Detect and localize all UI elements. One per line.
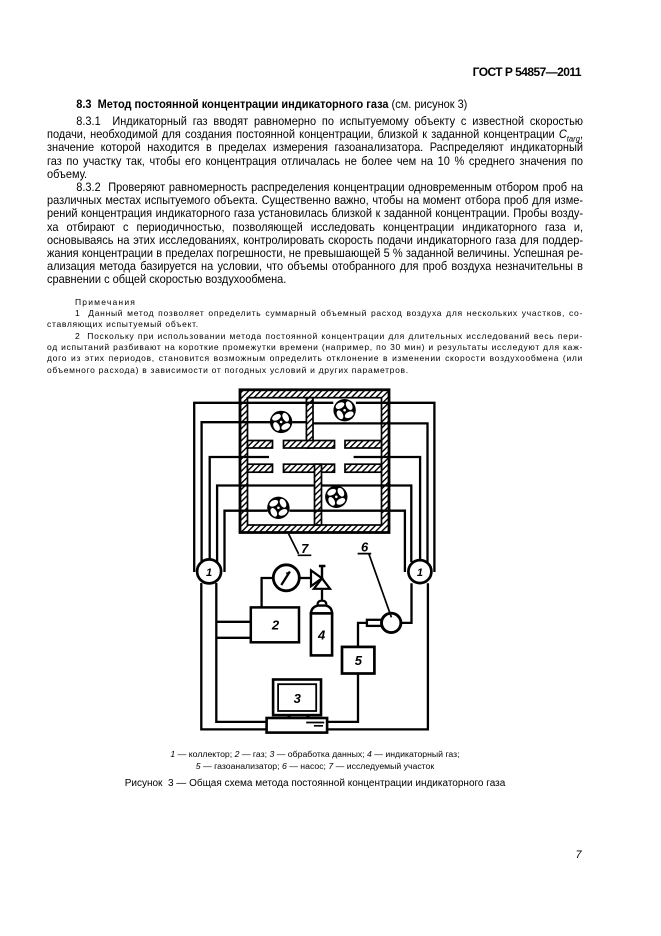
svg-text:2: 2 bbox=[271, 618, 280, 633]
svg-text:6: 6 bbox=[361, 540, 369, 555]
svg-text:1: 1 bbox=[417, 567, 423, 579]
svg-text:5: 5 bbox=[355, 653, 363, 668]
svg-text:7: 7 bbox=[301, 541, 309, 556]
svg-text:4: 4 bbox=[317, 628, 326, 643]
svg-text:3: 3 bbox=[294, 691, 302, 706]
svg-text:1: 1 bbox=[206, 567, 212, 579]
